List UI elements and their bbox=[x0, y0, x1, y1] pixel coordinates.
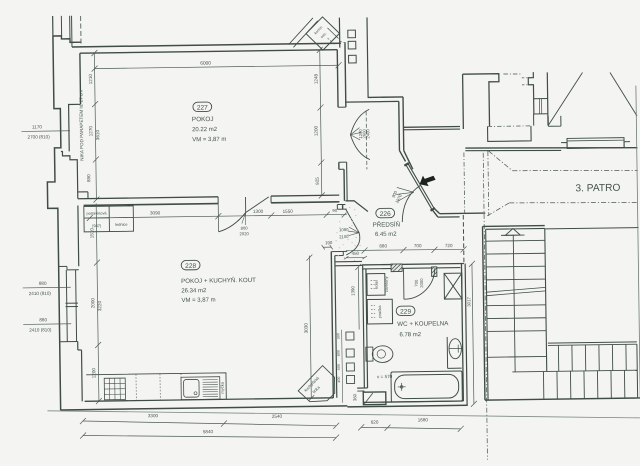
svg-text:VM = 3,87 m: VM = 3,87 m bbox=[192, 137, 226, 143]
svg-text:26.34 m2: 26.34 m2 bbox=[181, 288, 207, 294]
svg-text:1300: 1300 bbox=[253, 209, 264, 214]
svg-text:2410 (810): 2410 (810) bbox=[29, 291, 52, 296]
svg-text:3090: 3090 bbox=[150, 210, 161, 215]
svg-text:228: 228 bbox=[185, 263, 196, 270]
svg-text:3610: 3610 bbox=[95, 130, 100, 141]
svg-text:1550: 1550 bbox=[283, 209, 294, 214]
svg-text:1200: 1200 bbox=[313, 125, 318, 136]
svg-text:925: 925 bbox=[315, 177, 320, 185]
svg-text:(947): (947) bbox=[92, 223, 102, 228]
svg-text:zavěšený: zavěšený bbox=[385, 276, 389, 292]
svg-text:700: 700 bbox=[414, 243, 422, 248]
svg-text:6.45 m2: 6.45 m2 bbox=[375, 232, 397, 238]
svg-text:potravinová: potravinová bbox=[86, 210, 107, 215]
svg-text:kotel: kotel bbox=[374, 280, 379, 289]
svg-text:450: 450 bbox=[352, 251, 360, 256]
svg-text:2700 (810): 2700 (810) bbox=[27, 134, 50, 139]
svg-text:226: 226 bbox=[380, 211, 391, 218]
svg-text:3030: 3030 bbox=[303, 323, 308, 334]
svg-text:800: 800 bbox=[337, 350, 341, 356]
svg-text:880: 880 bbox=[39, 317, 47, 322]
svg-text:1680: 1680 bbox=[418, 417, 429, 422]
svg-text:3017: 3017 bbox=[466, 296, 471, 306]
svg-text:20.22 m2: 20.22 m2 bbox=[192, 127, 218, 133]
svg-text:2000: 2000 bbox=[90, 298, 95, 309]
svg-text:WC + KOUPELNA: WC + KOUPELNA bbox=[397, 320, 449, 328]
svg-text:620: 620 bbox=[371, 420, 379, 425]
svg-text:6.78 m2: 6.78 m2 bbox=[399, 332, 421, 338]
svg-text:360: 360 bbox=[352, 393, 357, 401]
svg-text:229: 229 bbox=[400, 309, 411, 316]
svg-text:600: 600 bbox=[337, 364, 341, 370]
svg-text:myčka: myčka bbox=[220, 381, 225, 393]
svg-text:1390: 1390 bbox=[350, 285, 355, 295]
svg-text:6000: 6000 bbox=[200, 61, 211, 67]
svg-text:800: 800 bbox=[241, 226, 249, 231]
svg-text:1510: 1510 bbox=[89, 228, 94, 239]
svg-text:2410 (810): 2410 (810) bbox=[29, 327, 52, 332]
svg-text:POKOJ + KUCHYŇ. KOUT: POKOJ + KUCHYŇ. KOUT bbox=[181, 277, 256, 285]
svg-text:1170: 1170 bbox=[32, 124, 42, 129]
svg-text:pračka: pračka bbox=[377, 305, 382, 318]
svg-text:2000: 2000 bbox=[419, 278, 424, 288]
svg-text:190: 190 bbox=[325, 240, 333, 245]
svg-text:890: 890 bbox=[86, 174, 91, 182]
svg-text:1248: 1248 bbox=[313, 73, 318, 84]
svg-text:v = 570: v = 570 bbox=[377, 374, 393, 379]
svg-text:NIKA POD PARAPETEM hl. 27 cm: NIKA POD PARAPETEM hl. 27 cm bbox=[78, 90, 84, 161]
svg-text:3220: 3220 bbox=[97, 301, 102, 312]
svg-text:2540: 2540 bbox=[272, 414, 283, 419]
svg-text:5840: 5840 bbox=[203, 429, 214, 434]
svg-text:PŘEDSÍŇ: PŘEDSÍŇ bbox=[373, 220, 401, 228]
svg-text:POKOJ: POKOJ bbox=[192, 116, 214, 123]
svg-text:227: 227 bbox=[197, 105, 208, 112]
svg-text:3. PATRO: 3. PATRO bbox=[575, 183, 620, 195]
svg-text:1270: 1270 bbox=[88, 126, 93, 137]
svg-text:2020: 2020 bbox=[240, 231, 250, 236]
svg-text:720: 720 bbox=[445, 243, 453, 248]
svg-text:1000: 1000 bbox=[339, 227, 349, 232]
svg-text:880: 880 bbox=[39, 281, 47, 286]
svg-text:1210: 1210 bbox=[88, 74, 93, 85]
svg-text:1200: 1200 bbox=[91, 368, 96, 379]
svg-text:400: 400 bbox=[337, 377, 341, 383]
svg-text:880: 880 bbox=[379, 243, 387, 248]
svg-text:VM = 3,87 m: VM = 3,87 m bbox=[181, 297, 215, 303]
svg-text:lednice: lednice bbox=[115, 222, 127, 227]
svg-text:300: 300 bbox=[336, 333, 340, 339]
svg-text:sop.: sop. bbox=[320, 31, 328, 39]
svg-text:3300: 3300 bbox=[148, 413, 159, 418]
